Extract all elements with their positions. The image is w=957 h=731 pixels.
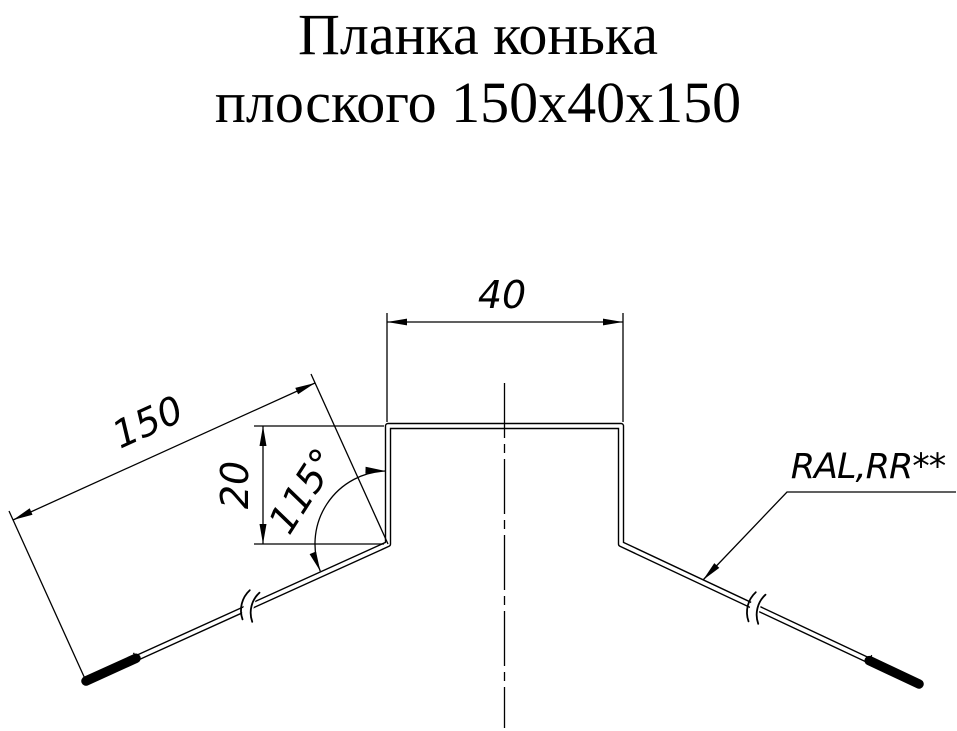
left-edge-hem — [86, 658, 136, 681]
dimension-value-115: 115° — [260, 441, 347, 542]
coating-callout: RAL,RR** — [703, 447, 956, 580]
drawing-title: Планка конька плоского 150х40х150 — [215, 2, 741, 135]
extension-line — [9, 511, 86, 681]
arrowhead-bottom — [310, 552, 321, 572]
dimension-value-150: 150 — [106, 387, 190, 457]
leader-arrowhead — [703, 563, 719, 580]
arrowhead-top — [365, 467, 385, 474]
leader-line — [703, 492, 956, 580]
drawing-sheet: Планка конька плоского 150х40х150 40 — [0, 0, 957, 731]
dimension-wing-length: 150 — [9, 374, 388, 681]
arrowhead-right — [603, 319, 623, 326]
arrowhead-bottom — [260, 524, 267, 544]
dimension-value-40: 40 — [478, 273, 526, 317]
dimension-value-20: 20 — [213, 461, 257, 509]
arrowhead-left — [387, 319, 407, 326]
title-line-2: плоского 150х40х150 — [215, 70, 741, 135]
coating-label: RAL,RR** — [791, 447, 946, 487]
right-edge-hem — [869, 661, 919, 684]
title-line-1: Планка конька — [298, 2, 658, 67]
arrowhead-left — [13, 508, 33, 520]
ridge-cap-technical-drawing: Планка конька плоского 150х40х150 40 — [0, 0, 957, 731]
arrowhead-right — [295, 383, 315, 394]
arrowhead-top — [260, 426, 267, 446]
